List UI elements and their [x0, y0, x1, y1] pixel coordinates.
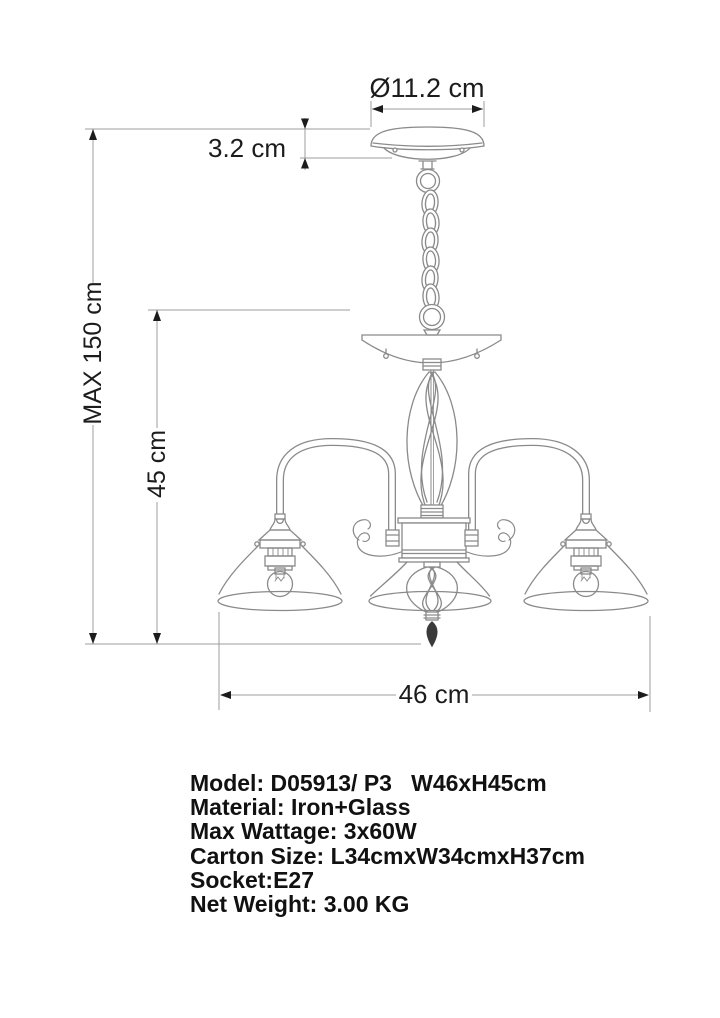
spec-carton-size: Carton Size: L34cmxW34cmxH37cm: [190, 844, 585, 868]
dim-fixture-height-lines: [85, 310, 421, 644]
spec-model: Model: D05913/ P3 W46xH45cm: [190, 771, 585, 795]
spec-socket: Socket:E27: [190, 868, 585, 892]
label-fixture-height: 45 cm: [143, 430, 171, 498]
finial: [427, 622, 437, 646]
label-max-height: MAX 150 cm: [79, 281, 107, 424]
right-arm: [472, 442, 586, 534]
dim-canopy-diameter-lines: [371, 101, 484, 127]
left-arm: [280, 442, 392, 534]
twisted-pendant: [407, 562, 458, 646]
label-canopy-height: 3.2 cm: [208, 133, 286, 163]
spec-max-wattage: Max Wattage: 3x60W: [190, 819, 585, 843]
spec-material: Material: Iron+Glass: [190, 795, 585, 819]
label-canopy-diameter: Ø11.2 cm: [369, 73, 484, 103]
product-specs: Model: D05913/ P3 W46xH45cm Material: Ir…: [190, 771, 585, 916]
hanging-chain: [417, 170, 445, 336]
center-hub: [398, 518, 470, 562]
label-fixture-width: 46 cm: [399, 679, 470, 709]
left-lamp: [218, 514, 342, 611]
diagram-page: Ø11.2 cm 3.2 cm MAX 150 cm 45 cm 46 cm M…: [0, 0, 720, 1018]
spec-net-weight: Net Weight: 3.00 KG: [190, 892, 585, 916]
ceiling-canopy: [371, 127, 484, 169]
top-dish: [362, 335, 501, 370]
right-lamp: [524, 514, 648, 611]
twisted-cage: [407, 370, 457, 518]
